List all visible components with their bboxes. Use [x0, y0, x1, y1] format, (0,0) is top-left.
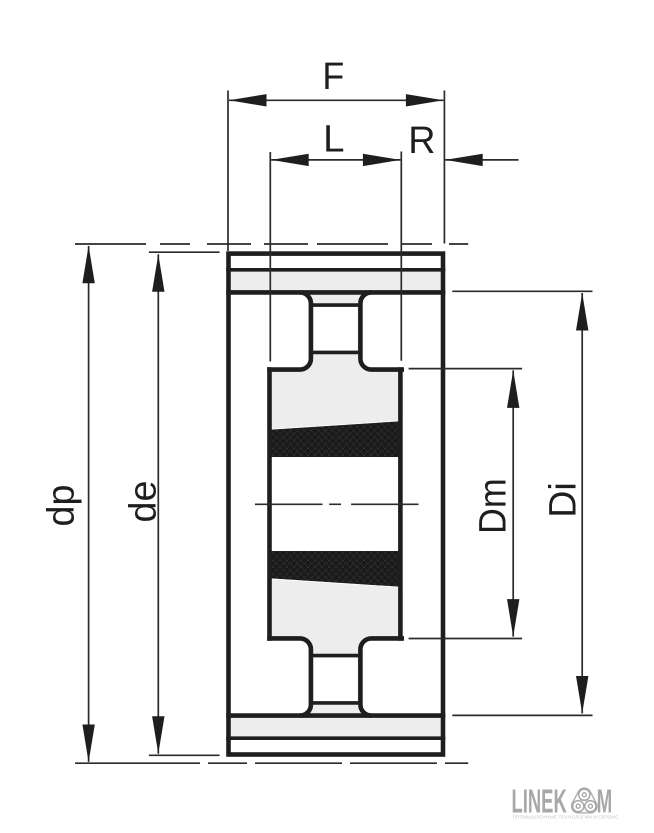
svg-text:F: F — [322, 55, 344, 97]
svg-text:ПРОМЫШЛЕННЫЕ ТЕХНОЛОГИИ И СЕРВ: ПРОМЫШЛЕННЫЕ ТЕХНОЛОГИИ И СЕРВИС — [513, 815, 619, 820]
svg-text:dp: dp — [39, 485, 81, 527]
svg-text:de: de — [122, 481, 164, 523]
svg-text:Dm: Dm — [472, 478, 514, 534]
svg-text:Di: Di — [541, 482, 583, 518]
svg-text:R: R — [408, 119, 435, 161]
svg-text:L: L — [323, 119, 344, 161]
